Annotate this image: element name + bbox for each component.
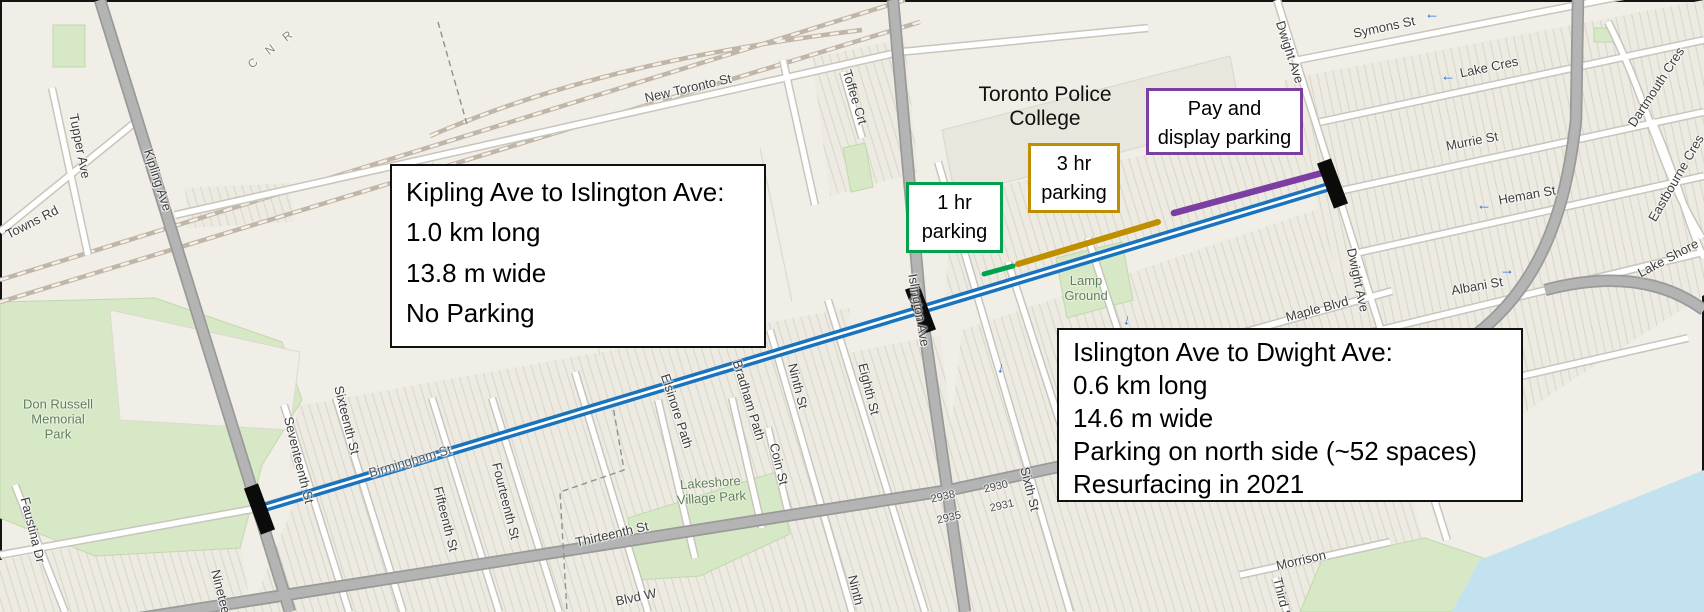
annotation-title: Kipling Ave to Islington Ave: <box>406 172 750 212</box>
parking-3hr-line1: 3 hr <box>1037 150 1111 179</box>
annotation-line: 13.8 m wide <box>406 253 750 293</box>
small-park-topleft <box>53 25 85 67</box>
one-way-arrow-lake-cres-icon: ← <box>1441 68 1456 85</box>
annotation-line: Parking on north side (~52 spaces) <box>1073 435 1507 468</box>
don-russell-park-label: Don Russell Memorial Park <box>23 398 93 443</box>
annotation-line: 14.6 m wide <box>1073 402 1507 435</box>
annotation-line: No Parking <box>406 293 750 333</box>
park-label-line: Park <box>23 427 93 442</box>
one-way-arrow-symons-icon: ← <box>1425 6 1440 23</box>
parking-3hr-box: 3 hr parking <box>1028 143 1120 213</box>
police-college-line2: College <box>978 107 1111 131</box>
one-way-arrow-heman-icon: ← <box>1477 197 1492 214</box>
parking-1hr-box: 1 hr parking <box>906 182 1003 253</box>
lakeshore-village-park-label: Lakeshore Village Park <box>675 474 746 509</box>
annotation-line: 0.6 km long <box>1073 369 1507 402</box>
parking-1hr-line1: 1 hr <box>915 189 994 218</box>
parking-1hr-line2: parking <box>915 218 994 247</box>
annotation-title: Islington Ave to Dwight Ave: <box>1073 336 1507 369</box>
annotation-line: Resurfacing in 2021 <box>1073 468 1507 501</box>
terminator-kipling <box>251 486 268 532</box>
pay-display-box: Pay and display parking <box>1146 88 1303 155</box>
police-college-line1: Toronto Police <box>978 83 1111 107</box>
park-label-line: Memorial <box>23 413 93 428</box>
park-label-line: Ground <box>1064 289 1107 304</box>
map-canvas: Towns Rd Tupper Ave Kipling Ave C N R Ne… <box>0 0 1704 612</box>
pay-display-line2: display parking <box>1155 124 1294 153</box>
lamp-ground-label: Lamp Ground <box>1064 274 1107 304</box>
parking-3hr-line2: parking <box>1037 179 1111 208</box>
police-college-label: Toronto Police College <box>978 83 1111 131</box>
park-label-line: Don Russell <box>23 398 93 413</box>
annotation-box-kipling-islington: Kipling Ave to Islington Ave: 1.0 km lon… <box>390 164 766 348</box>
pay-display-line1: Pay and <box>1155 95 1294 124</box>
one-way-arrow-albani-icon: → <box>1500 262 1515 279</box>
park-label-line: Lamp <box>1064 274 1107 289</box>
annotation-line: 1.0 km long <box>406 212 750 252</box>
annotation-box-islington-dwight: Islington Ave to Dwight Ave: 0.6 km long… <box>1057 328 1523 502</box>
